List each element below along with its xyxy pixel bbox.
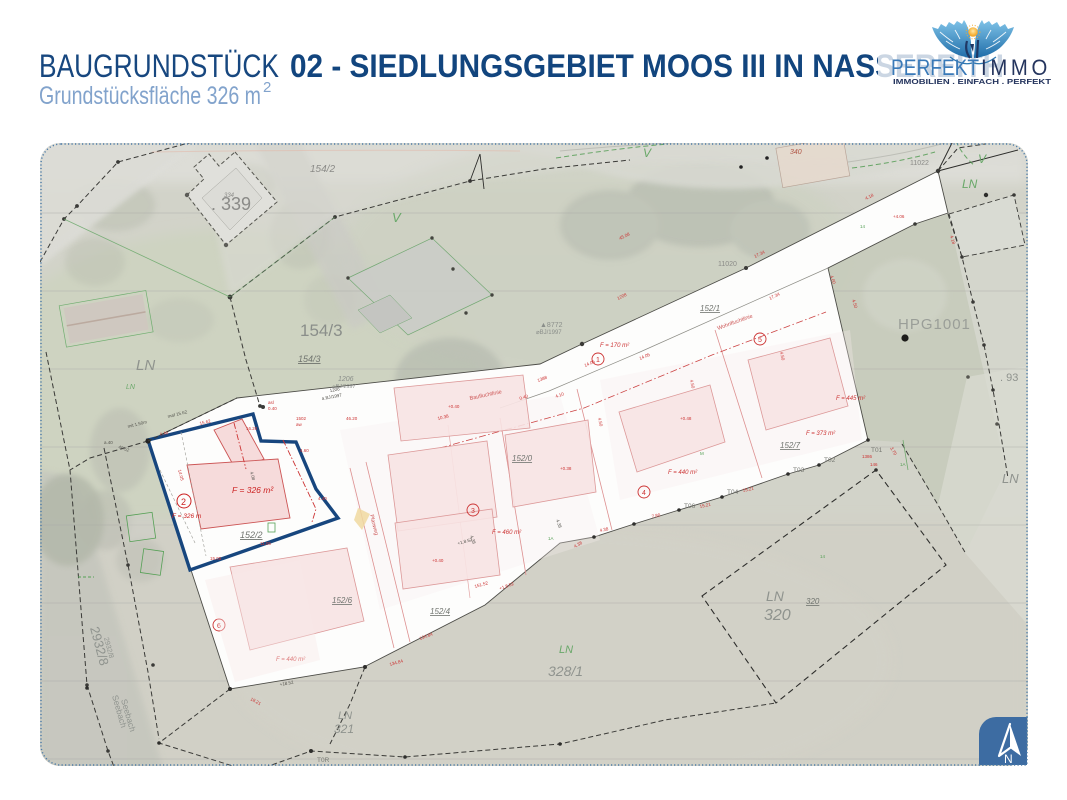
svg-text:1386: 1386 <box>862 454 873 459</box>
svg-text:4.40: 4.40 <box>318 496 327 501</box>
svg-text:2: 2 <box>263 79 271 96</box>
svg-text:LN: LN <box>766 588 785 604</box>
svg-text:Grundstücksfläche 326 m: Grundstücksfläche 326 m <box>39 82 261 110</box>
svg-text:152/1: 152/1 <box>700 304 720 313</box>
svg-text:F = 445 m²: F = 445 m² <box>836 396 866 402</box>
svg-text:16.20: 16.20 <box>246 426 258 431</box>
svg-text:T0R: T0R <box>317 757 330 764</box>
svg-text:▲8772: ▲8772 <box>540 322 563 329</box>
svg-text:146: 146 <box>870 462 878 467</box>
svg-text:321: 321 <box>334 722 354 736</box>
svg-text:1A: 1A <box>900 462 906 467</box>
svg-text:154/3: 154/3 <box>298 354 321 364</box>
svg-text:T01: T01 <box>871 447 883 454</box>
svg-text:LN: LN <box>126 384 136 391</box>
svg-text:F = 326 m²: F = 326 m² <box>232 485 274 495</box>
svg-text:+4.06: +4.06 <box>893 214 905 219</box>
svg-text:1502: 1502 <box>296 416 307 421</box>
svg-text:IMMOBILIEN . EINFACH . PER: IMMOBILIEN . EINFACH . PERFEKT <box>893 79 1052 86</box>
svg-text:HPG1001: HPG1001 <box>898 316 971 333</box>
svg-text:152/7: 152/7 <box>780 441 801 450</box>
svg-text:14: 14 <box>860 224 866 229</box>
svg-text:5: 5 <box>758 337 762 344</box>
svg-text:320: 320 <box>764 607 791 624</box>
svg-text:T02: T02 <box>824 457 836 464</box>
svg-text:N: N <box>1004 752 1013 766</box>
svg-text:334: 334 <box>224 193 235 199</box>
svg-text:M: M <box>700 451 704 456</box>
svg-text:46.20: 46.20 <box>346 416 358 421</box>
svg-text:T03: T03 <box>793 467 805 474</box>
svg-text:320: 320 <box>806 597 820 606</box>
svg-text:154/2: 154/2 <box>310 164 335 175</box>
svg-text:+0.40: +0.40 <box>432 558 444 563</box>
svg-text:aw: aw <box>296 422 303 427</box>
svg-text:a.40: a.40 <box>104 440 113 445</box>
svg-text:15.05: 15.05 <box>210 556 222 561</box>
svg-text:+0.40: +0.40 <box>448 404 460 409</box>
svg-text:11.05: 11.05 <box>260 541 271 546</box>
svg-text:3: 3 <box>471 508 475 515</box>
svg-text:328/1: 328/1 <box>548 663 583 679</box>
svg-text:LN: LN <box>136 357 155 374</box>
svg-text:+0.38: +0.38 <box>560 466 572 471</box>
svg-text:LN: LN <box>338 710 352 722</box>
svg-text:152/2: 152/2 <box>240 530 263 540</box>
svg-text:0.40: 0.40 <box>268 406 277 411</box>
svg-text:+0.48: +0.48 <box>680 416 692 421</box>
svg-text:152/6: 152/6 <box>332 596 353 605</box>
svg-text:LN: LN <box>962 177 978 191</box>
svg-text:1: 1 <box>596 357 600 364</box>
svg-text:asl: asl <box>268 400 274 405</box>
svg-text:4: 4 <box>642 490 646 497</box>
svg-text:4.60: 4.60 <box>300 448 309 453</box>
svg-text:2: 2 <box>181 497 186 507</box>
svg-text:T06: T06 <box>684 503 696 510</box>
svg-text:F = 460 m²: F = 460 m² <box>492 530 522 536</box>
svg-text:F = 440 m²: F = 440 m² <box>668 470 698 476</box>
svg-text:. 93: . 93 <box>1000 372 1018 384</box>
svg-text:V: V <box>392 210 402 225</box>
svg-text:F = 170 m²: F = 170 m² <box>600 343 630 349</box>
svg-text:154/3: 154/3 <box>300 321 343 340</box>
svg-text:PERFEKT: PERFEKT <box>891 55 979 80</box>
svg-text:F = 373 m²: F = 373 m² <box>806 431 836 437</box>
svg-text:LN: LN <box>559 644 573 656</box>
svg-text:V: V <box>978 152 987 166</box>
svg-text:11020: 11020 <box>718 261 737 268</box>
svg-text:152/4: 152/4 <box>430 607 451 616</box>
svg-text:14: 14 <box>820 554 826 559</box>
svg-text:152/0: 152/0 <box>512 454 533 463</box>
svg-text:11022: 11022 <box>910 160 929 167</box>
svg-text:BAUGRUNDSTÜCK: BAUGRUNDSTÜCK <box>39 48 279 84</box>
svg-text:LN: LN <box>1002 471 1019 486</box>
svg-text:T04: T04 <box>727 489 739 496</box>
svg-text:1206: 1206 <box>338 376 354 383</box>
svg-text:⌀BJ/1997: ⌀BJ/1997 <box>536 330 562 336</box>
svg-text:340: 340 <box>790 149 802 156</box>
svg-text:1A: 1A <box>548 536 554 541</box>
svg-text:IMMO: IMMO <box>981 55 1051 80</box>
svg-text:F = 326 m: F = 326 m <box>172 513 202 520</box>
svg-text:V: V <box>643 146 652 160</box>
